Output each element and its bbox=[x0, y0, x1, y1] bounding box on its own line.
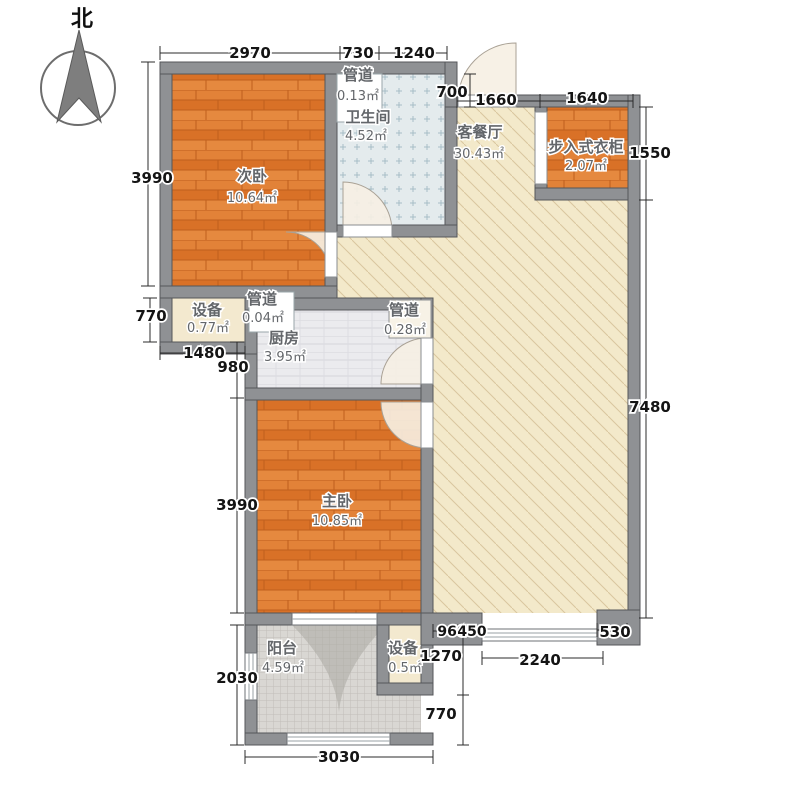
wall bbox=[245, 613, 292, 625]
dim-right-1550: 1550 bbox=[629, 144, 671, 162]
closet-opening bbox=[535, 112, 547, 184]
dim-top-2970: 2970 bbox=[229, 44, 271, 62]
balcony-bottom-window bbox=[287, 733, 390, 745]
compass: 北 bbox=[41, 7, 115, 125]
dim-top-1240: 1240 bbox=[393, 44, 435, 62]
room-area-duct-mid: 0.04㎡ bbox=[242, 311, 284, 326]
room-name-kitchen: 厨房 bbox=[269, 329, 299, 347]
wall bbox=[377, 683, 433, 695]
dim-left-3990-top: 3990 bbox=[131, 169, 173, 187]
dim-br-1270: 1270 bbox=[420, 647, 462, 665]
room-name-duct-mid: 管道 bbox=[247, 290, 277, 308]
compass-north-label: 北 bbox=[71, 7, 93, 32]
room-area-master-bedroom: 10.85㎡ bbox=[312, 514, 362, 529]
secondary-bedroom-door bbox=[325, 232, 337, 277]
room-name-balcony: 阳台 bbox=[267, 639, 297, 657]
dim-left-770: 770 bbox=[135, 307, 166, 325]
living-room-window bbox=[482, 629, 597, 641]
wall bbox=[245, 388, 433, 400]
room-area-equipment-bottom: 0.5㎡ bbox=[388, 661, 422, 676]
north-arrow-icon bbox=[57, 30, 101, 122]
room-area-walk-in-closet: 2.07㎡ bbox=[565, 159, 607, 174]
dim-top-730: 730 bbox=[342, 44, 373, 62]
dim-left-980: 980 bbox=[217, 358, 248, 376]
room-name-equipment-bottom: 设备 bbox=[388, 639, 419, 657]
room-name-master-bedroom: 主卧 bbox=[322, 492, 352, 510]
wall bbox=[535, 188, 628, 200]
room-name-secondary-bedroom: 次卧 bbox=[237, 167, 267, 185]
wall bbox=[421, 384, 433, 402]
room-area-balcony: 4.59㎡ bbox=[262, 661, 304, 676]
wall bbox=[160, 62, 457, 74]
room-area-bathroom: 4.52㎡ bbox=[345, 129, 387, 144]
room-name-living-dining: 客餐厅 bbox=[456, 123, 502, 141]
master-bedroom-door bbox=[421, 402, 433, 448]
dim-entry-700: 700 bbox=[436, 83, 467, 101]
wall bbox=[325, 74, 337, 232]
floor-plan-page: 次卧 10.64㎡ 管道 0.13㎡ 卫生间 4.52㎡ 客餐厅 30.43㎡ … bbox=[0, 0, 800, 800]
room-area-duct-right: 0.28㎡ bbox=[384, 323, 426, 338]
wall bbox=[337, 225, 343, 237]
kitchen-door bbox=[421, 338, 433, 384]
dim-br-770: 770 bbox=[425, 705, 456, 723]
dim-right-7480: 7480 bbox=[629, 398, 671, 416]
dim-entry-1660: 1660 bbox=[475, 91, 517, 109]
room-name-duct-right: 管道 bbox=[389, 301, 419, 319]
room-name-equipment-left: 设备 bbox=[192, 301, 223, 319]
wall bbox=[392, 225, 457, 237]
dim-br-2240: 2240 bbox=[519, 651, 561, 669]
wall bbox=[535, 107, 547, 112]
dim-br-530: 530 bbox=[599, 623, 630, 641]
room-name-duct-top: 管道 bbox=[343, 66, 373, 84]
room-area-duct-top: 0.13㎡ bbox=[337, 89, 379, 104]
room-name-walk-in-closet: 步入式衣柜 bbox=[548, 138, 623, 156]
dim-bottom-3030: 3030 bbox=[318, 748, 360, 766]
room-area-living-dining: 30.43㎡ bbox=[454, 147, 504, 162]
room-area-secondary-bedroom: 10.64㎡ bbox=[227, 191, 277, 206]
dim-br-450: 450 bbox=[457, 624, 486, 640]
floor-plan-canvas: 次卧 10.64㎡ 管道 0.13㎡ 卫生间 4.52㎡ 客餐厅 30.43㎡ … bbox=[0, 0, 800, 800]
wall bbox=[628, 95, 640, 618]
room-name-bathroom: 卫生间 bbox=[345, 108, 390, 126]
dim-entry-1640: 1640 bbox=[566, 89, 608, 107]
bathroom-door bbox=[343, 225, 392, 237]
room-area-kitchen: 3.95㎡ bbox=[264, 350, 306, 365]
room-area-equipment-left: 0.77㎡ bbox=[187, 321, 229, 336]
dim-left-3990-bottom: 3990 bbox=[216, 496, 258, 514]
dim-left-2030: 2030 bbox=[216, 669, 258, 687]
